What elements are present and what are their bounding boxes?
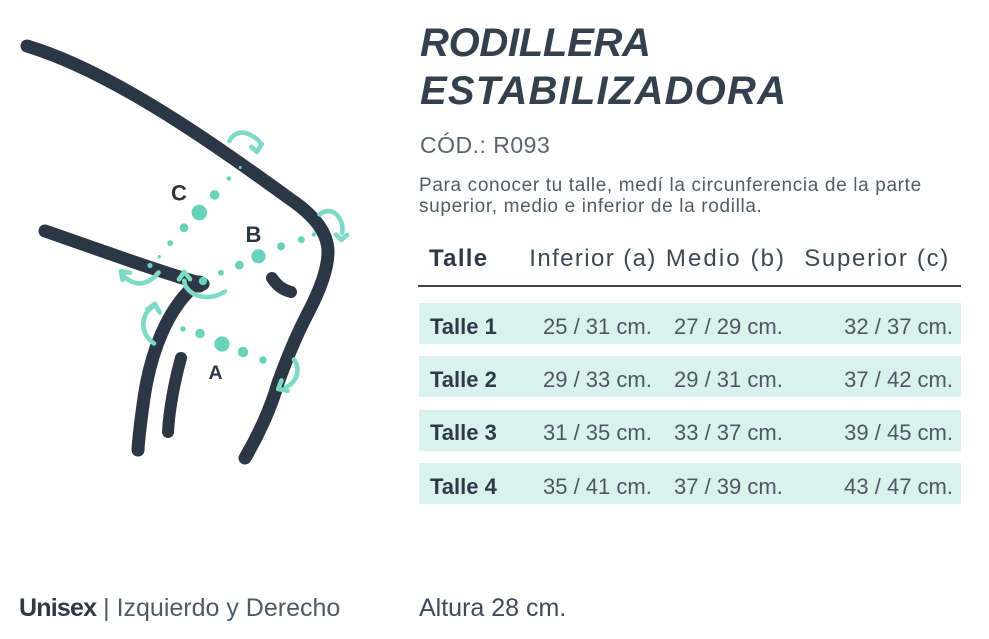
svg-text:C: C — [171, 181, 187, 206]
svg-text:A: A — [209, 362, 223, 384]
svg-text:B: B — [246, 222, 262, 247]
